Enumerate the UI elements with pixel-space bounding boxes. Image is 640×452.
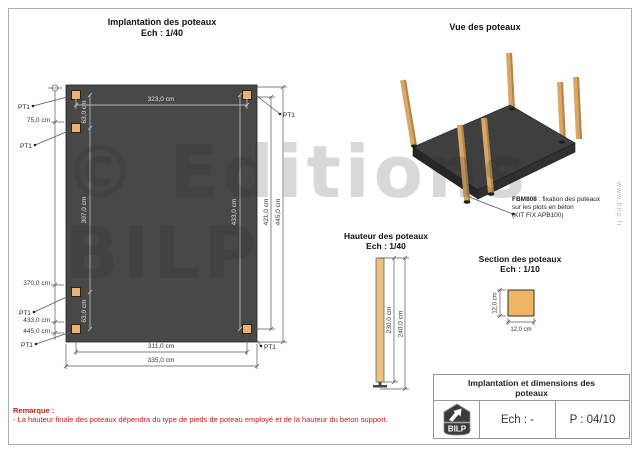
dim-right-outer-b-label: 445,0 cm	[275, 199, 282, 226]
dim-span-left-label: 307,0 cm	[81, 197, 88, 224]
dim-gap-bottom-label: 63,0 cm	[81, 299, 88, 322]
sfig-square	[508, 290, 534, 316]
hfig-dim-post-label: 230,0 cm	[386, 307, 393, 334]
dim-top-label: 323,0 cm	[148, 96, 175, 103]
pt1-label-1: PT1	[18, 104, 30, 111]
title-block-row: BILP Ech : - P : 04/10	[434, 401, 629, 438]
title-block-page: P : 04/10	[556, 401, 629, 438]
hfig-post	[376, 258, 384, 382]
dim-bottom-inner-label: 311,0 cm	[148, 343, 174, 350]
post-bottom-left	[72, 325, 81, 334]
view3d-title: Vue des poteaux	[410, 22, 560, 33]
bilp-logo-icon: BILP	[443, 404, 471, 436]
dim-right-outer-a-label: 421,0 cm	[263, 199, 270, 226]
fbm-rest: : fixation des poteaux	[537, 196, 600, 203]
post-bottom-right	[243, 325, 252, 334]
plan-scale: Ech : 1/40	[87, 28, 237, 39]
sfig-scale: Ech : 1/10	[455, 264, 585, 274]
hfig-foot-plate	[373, 385, 387, 388]
hfig-dim-total-label: 240,0 cm	[398, 311, 405, 338]
level-445-label: 445,0 cm	[23, 328, 50, 335]
sfig-dim-w-label: 12,0 cm	[510, 327, 531, 333]
title-block-logo-cell: BILP	[434, 401, 480, 438]
plan-slab	[66, 85, 257, 342]
pt1-label-4: PT1	[21, 342, 33, 349]
fbm-leader	[469, 197, 514, 215]
level-370-label: 370,0 cm	[23, 280, 50, 287]
bilp-logo-text: BILP	[447, 424, 466, 433]
sfig-dim-h-label: 12,0 cm	[493, 292, 499, 313]
plan-title: Implantation des poteaux	[87, 17, 237, 28]
hfig-title: Hauteur des poteaux	[327, 231, 445, 241]
remark-text: - La hauteur finale des poteaux dépendra…	[13, 415, 388, 424]
post-left-2	[72, 124, 81, 133]
sfig-drawing: 12,0 cm 12,0 cm	[470, 282, 620, 337]
fbm-code: FBM808	[512, 196, 537, 203]
pt1-label-3: PT1	[19, 310, 31, 317]
dim-right-inner-label: 433,0 cm	[231, 199, 238, 226]
post-left-3	[72, 288, 81, 297]
remark-block: Remarque : - La hauteur finale des potea…	[13, 406, 388, 424]
title-block-scale: Ech : -	[480, 401, 556, 438]
pt1-label-2: PT1	[20, 143, 32, 150]
level-75-label: 75,0 cm	[27, 117, 50, 124]
plan-drawing: 323,0 cm 63,0 cm 307,0 cm 63,0 cm 433,0 …	[0, 78, 330, 378]
level-433-label: 433,0 cm	[23, 317, 50, 324]
hfig-title-block: Hauteur des poteaux Ech : 1/40	[327, 231, 445, 251]
sfig-title-block: Section des poteaux Ech : 1/10	[455, 254, 585, 274]
sfig-title: Section des poteaux	[455, 254, 585, 264]
hfig-foot-stem	[379, 382, 382, 385]
title-block-title: Implantation et dimensions des poteaux	[434, 375, 629, 401]
website-url: www.bilp.fr	[615, 182, 622, 227]
fbm-note-line3: (KIT FIX APB100)	[512, 212, 630, 220]
plan-title-block: Implantation des poteaux Ech : 1/40	[87, 17, 237, 39]
remark-label: Remarque :	[13, 406, 388, 415]
fbm-note-line2: sur les plots en béton	[512, 204, 630, 212]
pt1-label-5: PT1	[283, 112, 295, 119]
dim-gap-top-label: 63,0 cm	[81, 100, 88, 123]
fbm-note: FBM808 : fixation des poteaux sur les pl…	[512, 196, 630, 220]
dim-left-levels: 75,0 cm 370,0 cm 433,0 cm 445,0 cm	[23, 85, 64, 340]
dim-bottom-outer-label: 335,0 cm	[148, 357, 175, 364]
view3d-title-block: Vue des poteaux	[410, 22, 560, 33]
pt1-label-6: PT1	[264, 344, 276, 351]
fbm-note-line1: FBM808 : fixation des poteaux	[512, 196, 630, 204]
title-block: Implantation et dimensions des poteaux B…	[433, 374, 630, 439]
